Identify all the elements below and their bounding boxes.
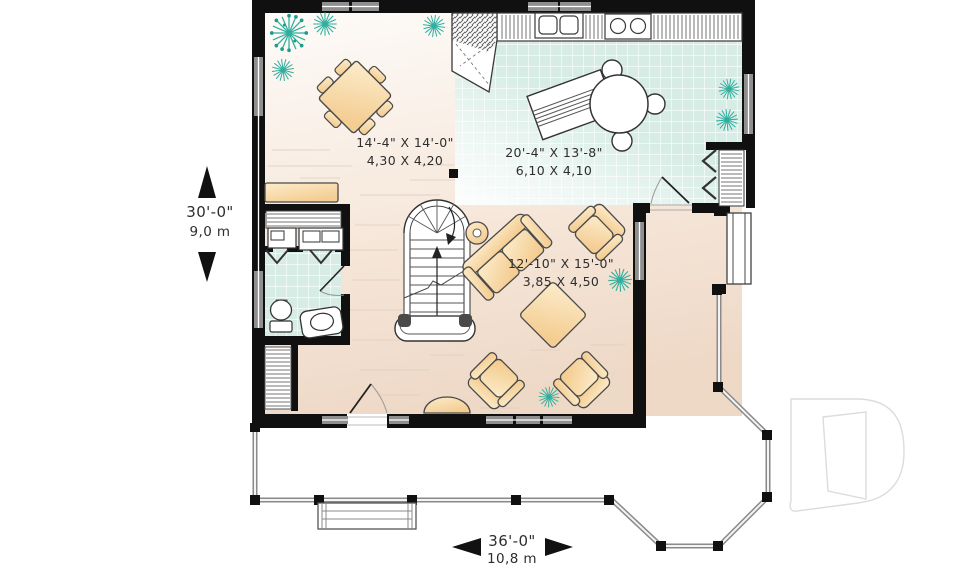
kitchen-chair xyxy=(612,131,632,151)
kitchen-size-metric: 6,10 X 4,10 xyxy=(516,163,593,178)
height-metric-label: 9,0 m xyxy=(190,224,231,240)
washer xyxy=(268,228,296,248)
pedestal-sink xyxy=(270,300,292,332)
dining-size-imperial: 14'-4" X 14'-0" xyxy=(356,135,454,150)
height-dimension: 30'-0" 9,0 m xyxy=(186,166,233,282)
bay-window xyxy=(727,213,751,284)
rear-closet xyxy=(719,150,744,206)
laundry-counter xyxy=(266,211,341,228)
living-size-imperial: 12'-10" X 15'-0" xyxy=(508,256,614,271)
width-dimension: 36'-0" 10,8 m xyxy=(452,532,573,567)
dryer xyxy=(299,228,343,250)
width-metric-label: 10,8 m xyxy=(487,551,537,567)
lamp-table xyxy=(466,222,488,244)
right-arrow-icon xyxy=(545,538,573,556)
porch-steps xyxy=(318,503,416,529)
buffet xyxy=(265,183,338,202)
cooktop xyxy=(605,14,651,39)
kitchen-sink xyxy=(535,13,583,38)
living-size-metric: 3,85 X 4,50 xyxy=(523,274,600,289)
floor-plan-svg: 30'-0" 9,0 m 36'-0" 10,8 m 14'-4" X 14'-… xyxy=(0,0,960,569)
left-arrow-icon xyxy=(452,538,481,556)
down-arrow-icon xyxy=(198,252,216,282)
width-imperial-label: 36'-0" xyxy=(488,532,535,550)
floor-plan-page: 30'-0" 9,0 m 36'-0" 10,8 m 14'-4" X 14'-… xyxy=(0,0,960,569)
watermark-logo xyxy=(790,399,904,511)
dining-size-metric: 4,30 X 4,20 xyxy=(367,153,444,168)
hall-closet xyxy=(265,347,291,409)
plant-icon xyxy=(270,14,308,52)
height-imperial-label: 30'-0" xyxy=(186,203,233,221)
kitchen-size-imperial: 20'-4" X 13'-8" xyxy=(505,145,603,160)
up-arrow-icon xyxy=(198,166,216,198)
toilet xyxy=(299,306,344,339)
